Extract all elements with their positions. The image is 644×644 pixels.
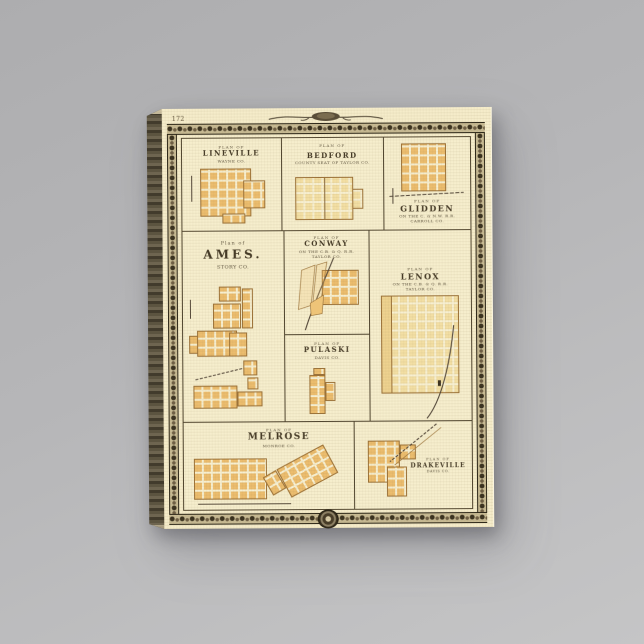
county-label: TAYLOR CO. xyxy=(370,286,471,292)
medallion-ornament-icon xyxy=(318,509,339,528)
railroad-line xyxy=(370,230,472,421)
town-name-melrose: MELROSE xyxy=(204,432,354,444)
page-number: 172 xyxy=(172,116,185,123)
town-name-glidden: GLIDDEN xyxy=(384,203,470,214)
panel-ames: Plan of AMES. STORY CO. xyxy=(182,231,284,422)
town-name-lenox: LENOX xyxy=(370,271,471,282)
baseline-rule xyxy=(198,503,292,505)
gray-wall-background: 172 xyxy=(0,0,644,644)
plan-of-label: PLAN OF xyxy=(285,341,369,347)
plan-of-label: PLAN OF xyxy=(284,235,368,241)
county-label: CARROLL CO. xyxy=(384,218,470,224)
town-blocks xyxy=(310,375,326,414)
panel-lineville: PLAN OF LINEVILLE WAYNE CO. xyxy=(182,138,281,231)
plan-of-label: PLAN OF xyxy=(204,427,354,433)
plan-of-label: Plan of xyxy=(183,241,284,248)
town-blocks xyxy=(313,368,326,376)
town-blocks xyxy=(295,176,354,220)
page-top-margin: 172 xyxy=(167,109,485,124)
main-street xyxy=(324,178,325,219)
county-label: MONROE CO. xyxy=(204,443,354,449)
canvas-print: 172 xyxy=(147,107,495,529)
town-blocks xyxy=(243,181,265,209)
banner-ornament-icon xyxy=(261,110,391,124)
atlas-page: 172 xyxy=(162,107,495,529)
panel-bedford: PLAN OF BEDFORD COUNTY SEAT OF TAYLOR CO… xyxy=(281,138,383,231)
map-content-area: PLAN OF LINEVILLE WAYNE CO. xyxy=(177,133,477,514)
panel-glidden: PLAN OF GLIDDEN ON THE C. & N.W. R.R. CA… xyxy=(383,137,471,230)
plan-of-label: PLAN OF xyxy=(406,458,469,463)
plan-of-label: PLAN OF xyxy=(282,142,383,148)
town-plans-grid: PLAN OF LINEVILLE WAYNE CO. xyxy=(181,136,473,511)
panel-pulaski: PLAN OF PULASKI DAVIS CO. xyxy=(285,335,370,421)
survey-mark xyxy=(191,176,192,202)
county-label: COUNTY SEAT OF TAYLOR CO. xyxy=(282,160,383,166)
plan-of-label: PLAN OF xyxy=(384,198,470,204)
center-column: PLAN OF CONWAY ON THE C.B. & Q. R.R. TAY… xyxy=(283,231,370,421)
panel-conway: PLAN OF CONWAY ON THE C.B. & Q. R.R. TAY… xyxy=(284,231,369,336)
panel-lenox: PLAN OF LENOX ON THE C.B. & Q. R.R. TAYL… xyxy=(369,230,472,421)
panel-melrose: PLAN OF MELROSE MONROE CO. xyxy=(184,422,355,510)
panel-drakeville: PLAN OF DRAKEVILLE DAVIS CO. xyxy=(354,421,472,509)
ornamental-border-right xyxy=(475,133,487,512)
town-blocks xyxy=(194,459,267,500)
county-label: STORY CO. xyxy=(183,264,284,271)
county-label: DAVIS CO. xyxy=(406,469,469,474)
county-label: WAYNE CO. xyxy=(182,158,281,164)
town-blocks xyxy=(222,214,246,223)
county-label: DAVIS CO. xyxy=(285,355,369,361)
town-blocks xyxy=(353,188,364,208)
town-name-ames: AMES. xyxy=(183,247,284,263)
bottom-border-wrap xyxy=(169,512,487,525)
town-blocks xyxy=(326,382,335,401)
plan-of-label: PLAN OF xyxy=(182,145,281,151)
plan-of-label: PLAN OF xyxy=(370,266,471,272)
county-label: TAYLOR CO. xyxy=(284,254,368,260)
town-blocks xyxy=(276,444,338,497)
